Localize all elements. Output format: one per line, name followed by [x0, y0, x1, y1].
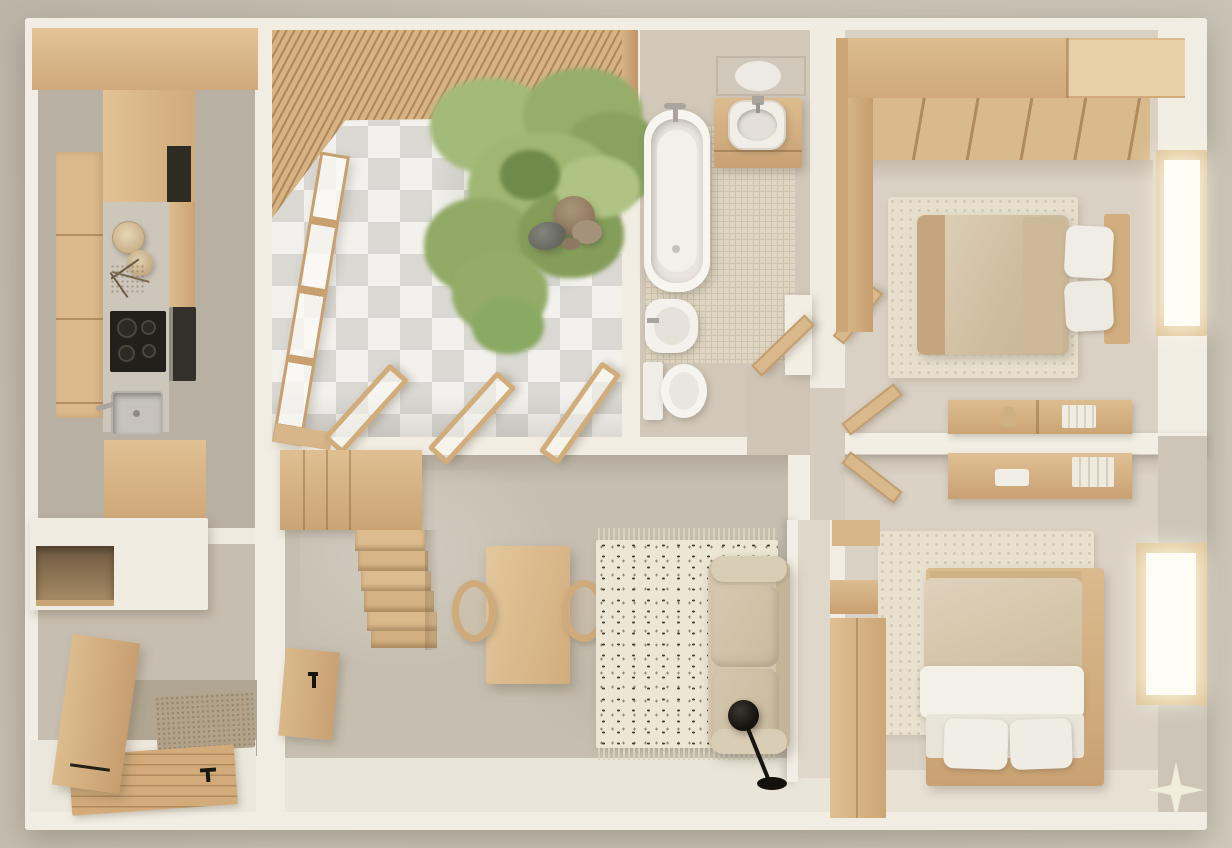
- shelf-unit-upper-divider: [1036, 400, 1039, 434]
- stairs-step-4: [364, 591, 434, 612]
- stairs-cabinet-seam-2: [326, 450, 328, 530]
- kitchen-oven: [169, 307, 196, 381]
- floor-lamp-base: [757, 777, 787, 790]
- mirror-sink-reflection: [735, 61, 781, 91]
- hallway-bedrooms-floor: [810, 388, 845, 520]
- floorplan-canvas: [0, 0, 1232, 848]
- living-rug-fringe-top: [598, 528, 776, 540]
- bedroom1-wardrobe-gable: [836, 38, 848, 332]
- window1-glass: [1164, 160, 1200, 326]
- window2-glass: [1146, 553, 1196, 695]
- shelf-tray-lower: [995, 469, 1029, 486]
- storage-door: [278, 648, 339, 740]
- bed2-pillow-right: [1009, 718, 1073, 770]
- bedroom1-wardrobe-front-slats: [872, 98, 1150, 160]
- bed1-blanket-fold: [917, 215, 945, 355]
- tree-canopy-core: [500, 150, 560, 200]
- shelf-figurine: [1001, 407, 1016, 427]
- cooktop-burner-4: [142, 344, 156, 358]
- dried-branch-bloom: [110, 264, 144, 294]
- bidet-faucet: [647, 318, 659, 323]
- kitchen-cabinet-left: [56, 152, 104, 418]
- hall-niche-shelf-edge: [36, 600, 114, 606]
- bed1-pillow-top: [1064, 225, 1115, 279]
- stairs-step-2: [358, 551, 428, 571]
- bathtub-faucet-stem: [673, 108, 678, 122]
- stairs-step-3: [361, 571, 431, 591]
- bathroom-sink-spout: [756, 103, 760, 113]
- shelf-books-upper: [1062, 405, 1096, 428]
- bed2-blanket: [920, 666, 1084, 718]
- bed2-pillow-left: [943, 718, 1009, 770]
- bedroom2-wardrobe-top: [832, 520, 880, 546]
- bidet-basin: [654, 307, 690, 345]
- bedroom1-wardrobe-top-right: [1068, 40, 1185, 96]
- hall-doormat: [155, 691, 256, 752]
- hall-cabinet-niche: [36, 546, 114, 604]
- kitchen-lower-cabinet: [104, 440, 206, 528]
- bedroom2-shelf: [830, 580, 878, 614]
- stairs-step-1: [355, 530, 425, 551]
- kitchen-cabinet-mid: [169, 202, 195, 310]
- cooktop-burner-2: [141, 320, 156, 335]
- stairs-cabinet: [280, 450, 422, 530]
- bedroom1-wardrobe-seam: [1066, 38, 1069, 98]
- stairs-cabinet-seam-1: [303, 450, 305, 530]
- kitchen-sink-drain: [133, 410, 140, 417]
- runner-handle-stem: [206, 770, 211, 782]
- bedroom2-wardrobe: [830, 618, 886, 818]
- kitchen-appliance-slot: [167, 146, 191, 210]
- living-floor-light-band: [285, 758, 830, 812]
- bedroom1-floor-shadow: [873, 160, 1153, 184]
- sofa-armrest-top: [711, 556, 787, 582]
- bed1-duvet-fold-strip: [1023, 217, 1063, 353]
- shelf-books-lower: [1072, 457, 1114, 487]
- bedroom2-wardrobe-seam: [856, 618, 858, 818]
- bed1-pillow-bottom: [1064, 280, 1115, 332]
- shelf-unit-upper: [948, 400, 1132, 434]
- toilet-seat: [669, 372, 699, 410]
- zen-rock-tiny: [562, 238, 580, 250]
- vanity-drawer-seam: [714, 150, 802, 152]
- kitchen-cooktop: [110, 311, 166, 372]
- kitchen-counter-top-band: [32, 28, 258, 90]
- toilet-tank: [643, 362, 663, 420]
- wall-hall-right: [838, 433, 1207, 454]
- bedroom1-wardrobe-side: [845, 98, 873, 332]
- dining-table: [486, 546, 570, 684]
- bathtub-drain: [672, 245, 680, 253]
- hallway-floor: [747, 367, 812, 455]
- storage-door-handle-top: [308, 672, 318, 676]
- cooktop-burner-3: [118, 345, 135, 362]
- bathroom-sink-basin: [737, 109, 777, 141]
- wall-partition-face: [798, 520, 830, 778]
- stairs-cabinet-seam-3: [349, 450, 351, 530]
- cooktop-burner-1: [117, 318, 137, 338]
- tree-canopy-blob-8: [472, 298, 544, 354]
- stairs-side-shadow: [425, 530, 439, 650]
- sofa-cushion-top: [711, 585, 779, 667]
- floor-lamp-shade: [728, 700, 759, 731]
- dining-chair-left: [452, 580, 496, 642]
